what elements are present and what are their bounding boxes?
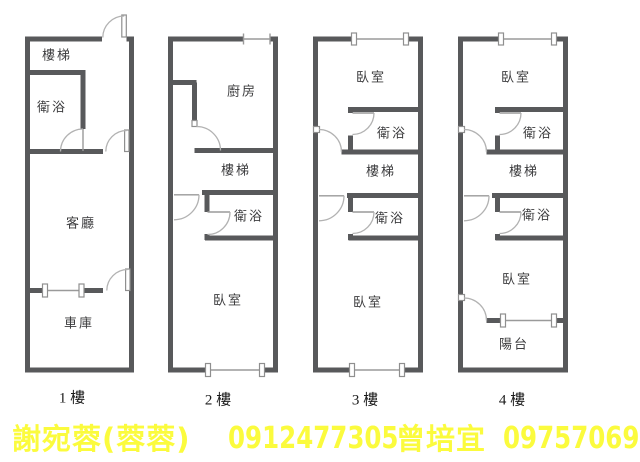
room-label-f1-garage: 車庫	[64, 318, 94, 331]
room-label-f2-stairs: 樓梯	[221, 165, 251, 178]
kitchen-door-2f	[192, 121, 221, 151]
room-label-f4-bedroom-top: 臥室	[501, 72, 531, 85]
balcony-window-4f	[501, 314, 557, 327]
garage-door-1f	[107, 269, 130, 291]
walls-3f	[313, 37, 423, 373]
bottom-window-3f	[350, 364, 405, 377]
top-window-3f	[352, 33, 409, 45]
room-label-f3-stairs: 樓梯	[366, 166, 396, 179]
room-label-f1-bathroom: 衛浴	[37, 102, 67, 115]
agent1-phone: 0912477305	[228, 418, 398, 458]
hall-door-1f	[106, 130, 129, 152]
bathroom2-door-4f	[500, 212, 522, 234]
agent1-name: 謝宛蓉(蓉蓉)	[12, 423, 191, 455]
contact-bar: 謝宛蓉(蓉蓉) 0912477305 曾培宜 0975706937	[0, 420, 640, 462]
room-label-f3-bedroom-top: 臥室	[356, 72, 386, 85]
floor-label-2f: 2 樓	[205, 394, 231, 409]
top-window-2f	[244, 34, 271, 45]
walls-2f	[168, 37, 278, 373]
room-label-f1-living: 客廳	[66, 218, 96, 231]
floorplan-2f	[168, 34, 278, 377]
floor-label-1f: 1 樓	[59, 392, 85, 407]
bathroom2-door-3f	[353, 212, 375, 234]
room-label-f3-bathroom1: 衛浴	[377, 128, 407, 141]
floor-label-4f: 4 樓	[499, 394, 525, 409]
stair-door-4f	[464, 196, 489, 221]
room-label-f4-balcony: 陽台	[499, 339, 529, 352]
room-label-f2-bedroom: 臥室	[213, 295, 243, 308]
room-label-f4-bathroom2: 衛浴	[522, 210, 552, 223]
room-label-f3-bedroom-bottom: 臥室	[353, 297, 383, 310]
room-label-f2-bathroom: 衛浴	[234, 211, 264, 224]
stair-door-2f	[174, 195, 199, 220]
agent2-phone: 0975706937	[503, 418, 640, 458]
room-label-f1-stairs: 樓梯	[42, 50, 72, 63]
stair-door-3f	[319, 196, 344, 221]
floorplan-canvas	[0, 0, 640, 462]
agent2-name: 曾培宜	[396, 423, 486, 455]
bathroom-door-2f	[208, 212, 231, 235]
entry-door-top-1f	[103, 15, 127, 38]
bottom-window-2f	[206, 364, 265, 377]
room-label-f4-bathroom1: 衛浴	[523, 128, 553, 141]
floor-label-3f: 3 樓	[352, 394, 378, 409]
garage-window-1f	[43, 284, 85, 297]
bathroom1-door-3f	[353, 113, 375, 135]
bathroom-door-1f	[61, 129, 84, 152]
room-label-f3-bathroom2: 衛浴	[375, 213, 405, 226]
room-label-f4-stairs: 樓梯	[509, 166, 539, 179]
room-label-f4-bedroom-bottom: 臥室	[502, 274, 532, 287]
room-label-f2-kitchen: 廚房	[227, 86, 257, 99]
top-window-4f	[499, 33, 557, 45]
bathroom1-door-4f	[500, 113, 522, 135]
